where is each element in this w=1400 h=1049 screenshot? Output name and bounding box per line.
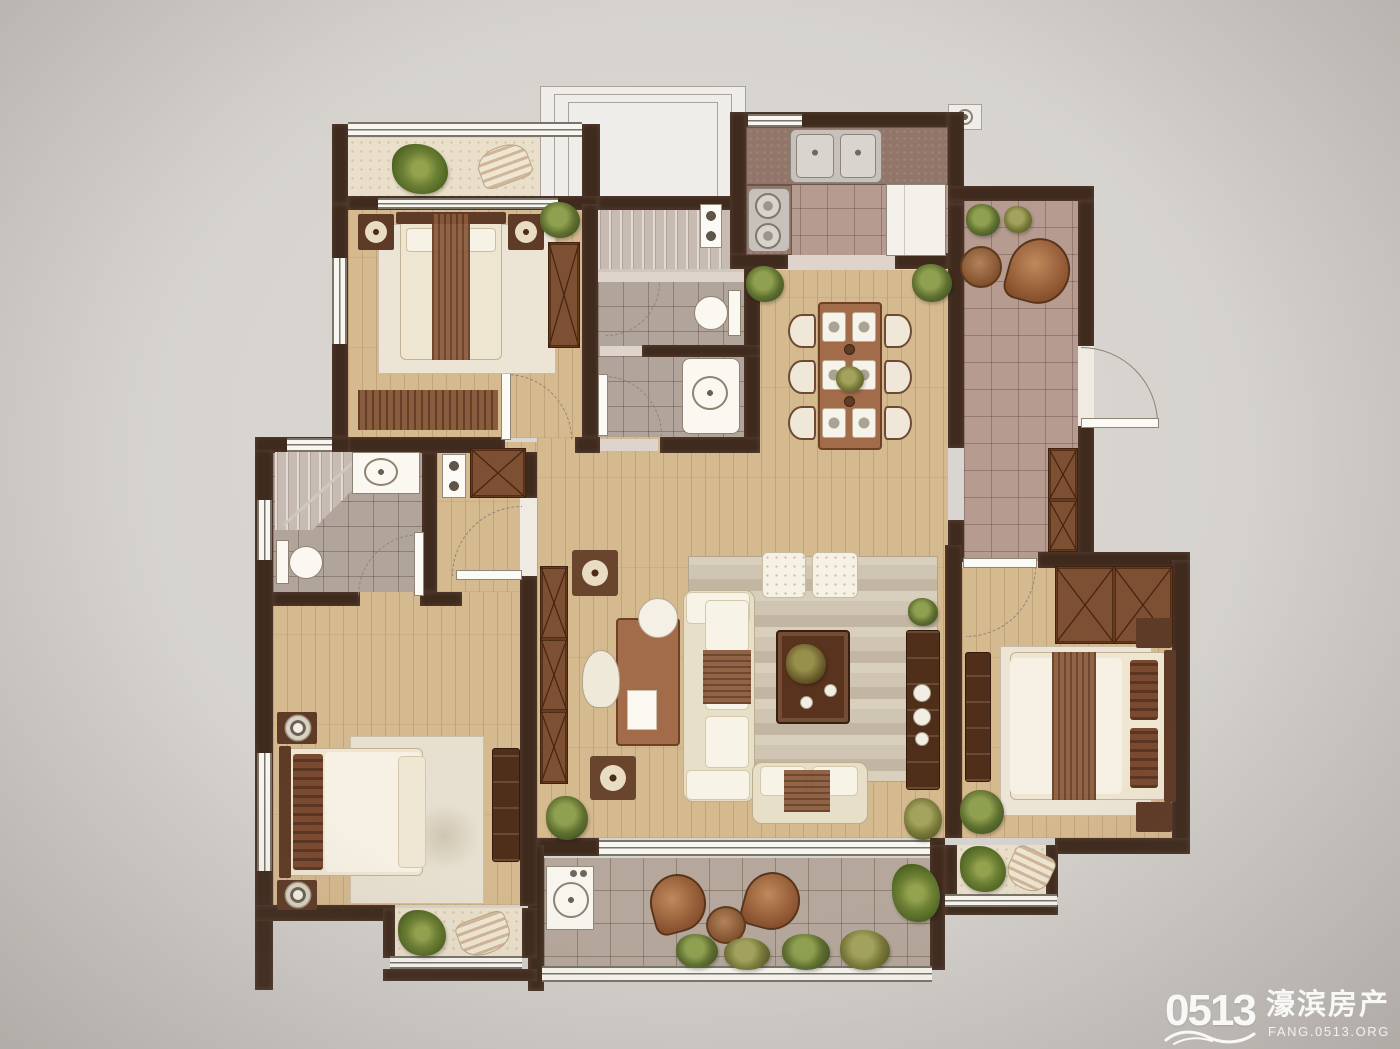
closet-hall-master <box>470 448 526 498</box>
bed3-pillow-2 <box>1130 728 1158 788</box>
placemat-1 <box>822 312 846 342</box>
ottoman-1 <box>762 552 806 598</box>
door-leaf-bedroom-nw <box>501 372 511 440</box>
tv-decor-2 <box>913 708 931 726</box>
floor-plan: 0513 濠滨房产 FANG.0513.ORG <box>0 0 1400 1049</box>
bed3-headboard <box>1164 650 1176 802</box>
nightstand-b3-n <box>1136 618 1172 648</box>
wall-bay3-left <box>945 845 957 897</box>
sofa-arm-bottom <box>686 770 750 800</box>
bed-nw-runner <box>432 214 470 360</box>
wall-balcony-nw-left <box>332 124 348 204</box>
floor-bath-shared-shower <box>598 210 744 272</box>
nightstand-b3-s <box>1136 802 1172 832</box>
bed-master-fold <box>398 756 426 868</box>
plant-entry-2 <box>1004 206 1032 233</box>
wall-living-bedroom3 <box>945 545 962 838</box>
plant-bedroom3 <box>960 790 1004 834</box>
wall-living-left-lower <box>520 576 537 906</box>
toilet-master-bowl <box>289 546 323 579</box>
door-leaf-master-bath <box>414 532 424 596</box>
window-bay-master <box>390 956 522 969</box>
plant-balcony-2 <box>724 938 770 970</box>
threshold-kitchen <box>788 255 895 267</box>
window-kitchen <box>748 114 802 127</box>
window-mbath-west <box>257 500 272 560</box>
shower-glass-shared <box>598 269 744 272</box>
wall-entry-right-lower <box>1078 424 1094 562</box>
plant-balcony-4 <box>840 930 890 970</box>
lamp-master-s <box>286 883 310 907</box>
dining-plant <box>836 366 864 392</box>
plant-living-se <box>904 798 942 840</box>
dresser-master <box>492 748 520 862</box>
wall-entry-right-upper <box>1078 201 1094 348</box>
wall-bath-shared-bottom <box>660 437 760 453</box>
wave-icon <box>1164 1027 1256 1045</box>
placemat-6 <box>852 408 876 438</box>
wall-entry-top <box>948 186 1094 201</box>
bed3-pillow-1 <box>1130 660 1158 720</box>
watermark-site: FANG.0513.ORG <box>1268 1024 1390 1039</box>
ottoman-2 <box>812 552 858 598</box>
dining-knob-1 <box>844 344 855 355</box>
wall-master-bottom <box>255 905 395 921</box>
window-bedroom-nw-balcony <box>378 198 558 209</box>
watermark-logo-block: 0513 <box>1164 989 1256 1045</box>
washer-knob-1 <box>580 870 587 877</box>
washer-knob-2 <box>570 870 577 877</box>
wall-bath-shared-divider <box>642 345 760 357</box>
dining-chair-r3 <box>884 406 912 440</box>
door-leaf-bath-shared <box>598 374 608 436</box>
placemat-5 <box>822 408 846 438</box>
wall-south-living-west <box>537 838 599 856</box>
burner-1 <box>755 193 781 219</box>
watermark-brand: 濠滨房产 <box>1266 989 1390 1022</box>
panel-meters-bath-shared <box>700 204 722 248</box>
bed3-runner <box>1052 652 1096 800</box>
plant-balcony-1 <box>676 934 718 968</box>
window-step-west <box>287 438 332 452</box>
panel-meters-master <box>442 454 466 498</box>
toilet-shared-tank <box>728 290 741 336</box>
floor-bath-shared-step <box>598 272 744 282</box>
plant-dining-east <box>912 264 952 302</box>
dining-chair-l1 <box>788 314 816 348</box>
plant-dining-west <box>746 266 784 302</box>
door-leaf-bedroom3 <box>963 558 1037 568</box>
lamp-sidetable-nw <box>582 560 608 586</box>
sink-basin-right <box>840 134 876 178</box>
basin-shared <box>692 376 728 410</box>
desk-paper <box>627 690 657 730</box>
desk-chair <box>582 650 620 708</box>
plant-living-sw <box>546 796 588 840</box>
dining-knob-2 <box>844 396 855 407</box>
threshold-bath-shared-door <box>600 439 658 451</box>
wall-nw-bottom-b <box>575 437 600 453</box>
lamp-nw-left <box>365 221 387 243</box>
fridge-kitchen <box>886 184 946 256</box>
coffee-plant <box>786 644 826 684</box>
plant-bedroom-nw <box>540 202 580 238</box>
sofa-throw <box>703 650 751 704</box>
side-roundtable <box>638 598 678 638</box>
lamp-sidetable-sw <box>600 765 626 791</box>
tv-decor-3 <box>915 732 929 746</box>
window-balcony-nw <box>348 122 582 137</box>
lamp-master-n <box>286 716 310 740</box>
opening-master-door <box>520 498 537 576</box>
dining-chair-l2 <box>788 360 816 394</box>
plant-tv <box>908 598 938 626</box>
basket-entry <box>960 246 1002 288</box>
burner-2 <box>755 223 781 249</box>
basin-master <box>364 458 398 486</box>
coffee-dot-2 <box>824 684 837 697</box>
wall-dining-entry <box>948 204 964 448</box>
closet-entry <box>1048 448 1078 552</box>
dining-chair-r2 <box>884 360 912 394</box>
toilet-master-tank <box>276 540 289 584</box>
tv-decor-1 <box>913 684 931 702</box>
bed-master-pillows <box>293 754 323 870</box>
bench-bedroom-nw <box>358 390 498 430</box>
dresser-bedroom3 <box>965 652 991 782</box>
placemat-2 <box>852 312 876 342</box>
window-living-south <box>599 840 930 856</box>
sink-basin-left <box>796 134 834 178</box>
watermark: 0513 濠滨房产 FANG.0513.ORG <box>1164 989 1390 1045</box>
wardrobe-bedroom-nw <box>548 242 580 348</box>
coffee-dot-1 <box>800 696 813 709</box>
bookshelf-living <box>540 566 568 784</box>
sofa-cushion-1 <box>705 600 749 652</box>
wall-bath-shared-left <box>582 204 598 438</box>
wall-baym-bottom <box>383 969 537 981</box>
washer-drum <box>553 882 589 918</box>
watermark-text-block: 濠滨房产 FANG.0513.ORG <box>1266 989 1390 1039</box>
plant-entry-1 <box>966 204 1000 236</box>
door-leaf-entrance <box>1081 418 1159 428</box>
door-arc-entrance <box>1081 347 1158 424</box>
wall-baym-left <box>383 908 395 958</box>
dining-chair-r1 <box>884 314 912 348</box>
window-master-west <box>257 753 272 871</box>
wall-bedroom3-bottom <box>1055 838 1190 854</box>
window-bedroom-nw-west <box>332 258 347 344</box>
door-leaf-master <box>456 570 522 580</box>
sofa-cushion-3 <box>705 716 749 768</box>
loveseat-throw <box>784 770 830 812</box>
bed-master-headboard <box>279 746 291 878</box>
lamp-nw-right <box>515 221 537 243</box>
wall-baym-right <box>522 908 537 958</box>
plant-balcony-3 <box>782 934 830 970</box>
window-bay-bedroom3 <box>945 894 1057 907</box>
wall-mbath-right <box>422 452 437 592</box>
toilet-shared-bowl <box>694 296 728 330</box>
dining-chair-l3 <box>788 406 816 440</box>
wall-mbath-bottom-west <box>273 592 360 606</box>
wall-mbath-bottom-mid <box>420 592 462 606</box>
threshold-bath-shared <box>600 346 642 356</box>
